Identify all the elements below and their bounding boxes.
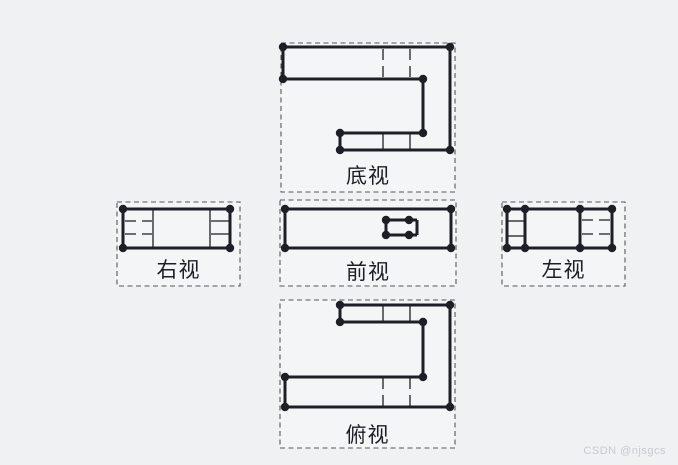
vertex-dot — [576, 205, 584, 213]
vertex-dot — [336, 146, 344, 154]
vertex-dot — [419, 318, 427, 326]
vertex-dot — [336, 301, 344, 309]
vertex-dot — [281, 244, 289, 252]
vertex-dot — [503, 205, 511, 213]
drawing-canvas: 底视 右视 前视 左视 俯视 CSDN @njsgcs — [0, 0, 678, 465]
vertex-dot — [419, 75, 427, 83]
vertex-dot — [279, 75, 287, 83]
vertex-dot — [419, 129, 427, 137]
vertex-dot — [446, 403, 454, 411]
vertex-dot — [281, 403, 289, 411]
vertex-dot — [419, 373, 427, 381]
vertex-dot — [226, 244, 234, 252]
vertex-dot — [336, 318, 344, 326]
vertex-dot — [521, 205, 529, 213]
vertex-dot — [447, 205, 455, 213]
vertex-dot — [119, 205, 127, 213]
vertex-dot — [446, 301, 454, 309]
vertex-dot — [521, 244, 529, 252]
vertex-dot — [446, 43, 454, 51]
vertex-dot — [608, 205, 616, 213]
csdn-watermark: CSDN @njsgcs — [583, 445, 666, 457]
vertex-dot — [382, 216, 390, 224]
vertex-dot — [119, 244, 127, 252]
view-label-front-view: 前视 — [280, 261, 456, 284]
vertex-dot — [503, 244, 511, 252]
vertex-dot — [446, 146, 454, 154]
vertex-dot — [447, 244, 455, 252]
vertex-dot — [336, 129, 344, 137]
view-label-right-view: 右视 — [117, 259, 240, 282]
view-label-top-view: 俯视 — [280, 424, 455, 447]
view-label-bottom-view: 底视 — [281, 165, 455, 188]
vertex-dot — [576, 244, 584, 252]
view-label-left-view: 左视 — [502, 259, 625, 282]
vertex-dot — [279, 43, 287, 51]
vertex-dot — [281, 373, 289, 381]
vertex-dot — [405, 216, 413, 224]
vertex-dot — [281, 205, 289, 213]
vertex-dot — [405, 231, 413, 239]
vertex-dot — [226, 205, 234, 213]
orthographic-views-svg — [0, 0, 678, 465]
vertex-dot — [608, 244, 616, 252]
vertex-dot — [382, 231, 390, 239]
